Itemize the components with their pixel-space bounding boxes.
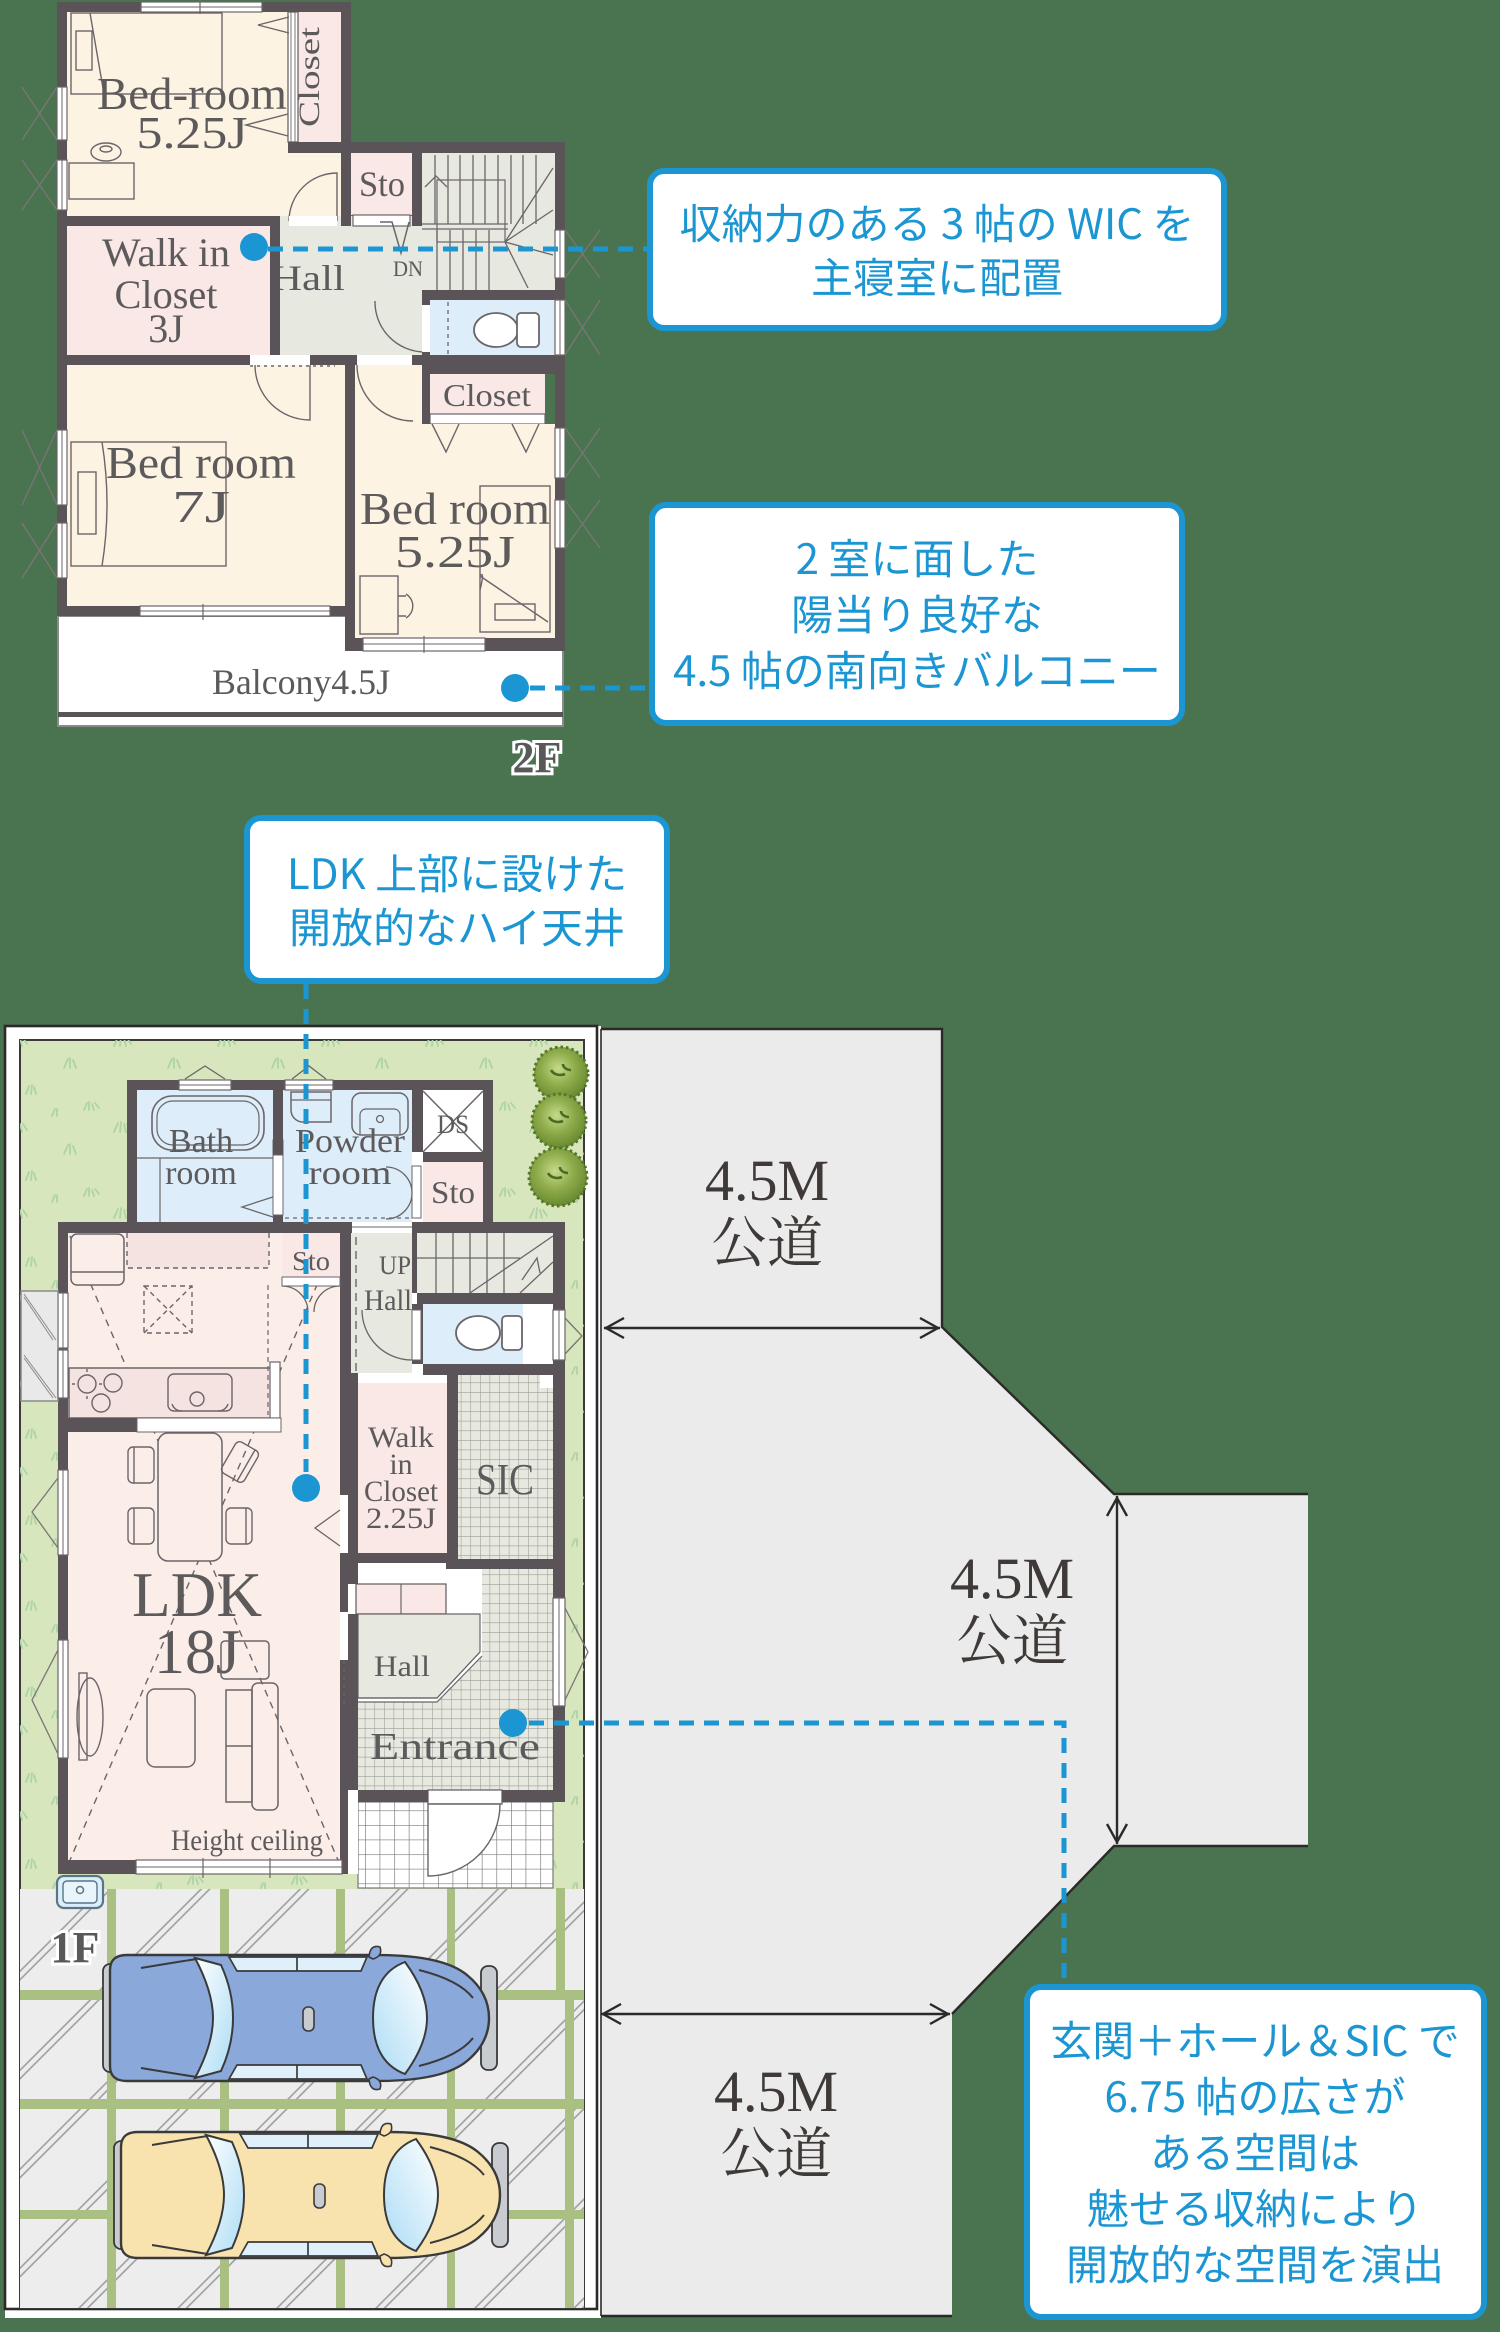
svg-text:1F: 1F [51,1923,100,1972]
svg-text:3J: 3J [148,306,184,351]
svg-text:Balcony4.5J: Balcony4.5J [212,662,390,702]
svg-text:7J: 7J [172,481,230,532]
svg-text:Sto: Sto [359,164,405,204]
svg-text:room: room [165,1155,237,1192]
svg-text:Hall: Hall [364,1284,412,1317]
svg-text:5.25J: 5.25J [137,107,248,158]
svg-text:2.25J: 2.25J [366,1502,436,1535]
svg-text:Sto: Sto [431,1174,475,1210]
svg-text:4.5M: 4.5M [950,1546,1074,1611]
svg-text:18J: 18J [154,1616,240,1687]
svg-text:Sto: Sto [292,1246,330,1276]
svg-text:Hall: Hall [271,258,345,298]
svg-text:4.5M: 4.5M [705,1148,829,1213]
svg-text:5.25J: 5.25J [395,526,515,577]
svg-text:Closet: Closet [443,377,531,413]
svg-text:DN: DN [393,256,423,281]
svg-text:2F: 2F [513,733,562,782]
svg-text:DS: DS [437,1110,469,1139]
svg-text:Height ceiling: Height ceiling [171,1824,323,1857]
svg-text:UP: UP [379,1251,411,1280]
svg-text:room: room [309,1155,392,1192]
svg-text:4.5M: 4.5M [714,2059,838,2124]
svg-text:SIC: SIC [476,1455,534,1504]
svg-text:Hall: Hall [374,1650,430,1683]
svg-text:Walk in: Walk in [102,230,230,275]
